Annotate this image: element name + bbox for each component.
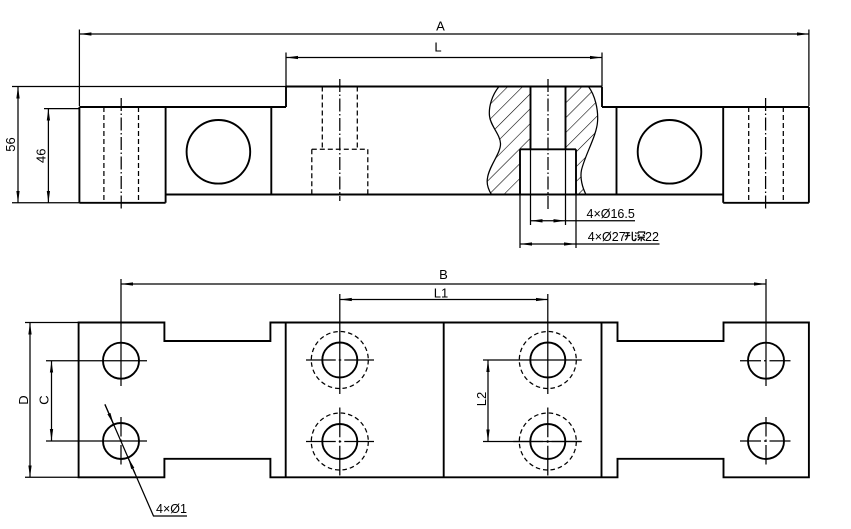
svg-text:56: 56 <box>3 137 18 151</box>
svg-text:L2: L2 <box>474 392 489 406</box>
svg-text:4×Ø1: 4×Ø1 <box>156 502 187 516</box>
svg-text:A: A <box>436 19 445 34</box>
svg-text:D: D <box>16 395 31 404</box>
svg-text:22: 22 <box>645 230 659 244</box>
svg-text:B: B <box>439 267 448 282</box>
svg-text:C: C <box>37 395 52 404</box>
svg-text:L: L <box>434 40 441 55</box>
svg-text:4×Ø27: 4×Ø27 <box>588 230 626 244</box>
svg-text:46: 46 <box>33 148 48 162</box>
svg-text:L1: L1 <box>434 286 448 301</box>
svg-text:4×Ø16.5: 4×Ø16.5 <box>587 207 635 221</box>
